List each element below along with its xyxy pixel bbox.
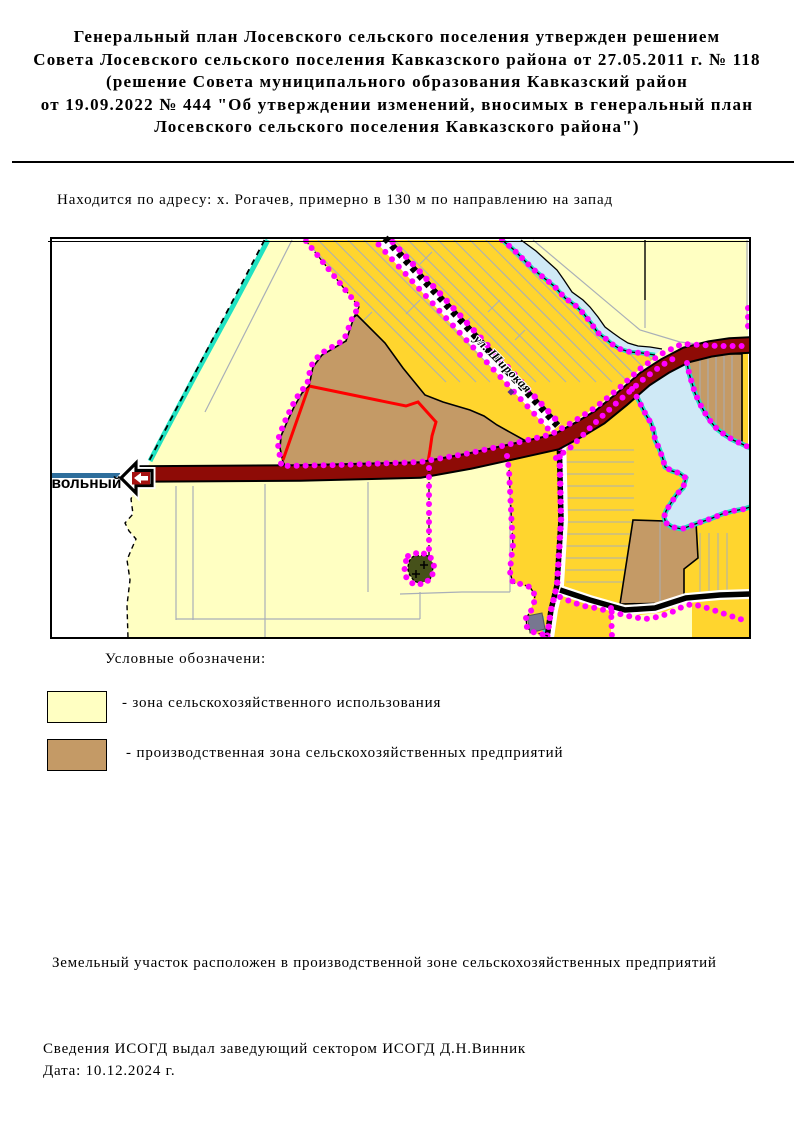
svg-text:вольный: вольный [52,475,122,492]
